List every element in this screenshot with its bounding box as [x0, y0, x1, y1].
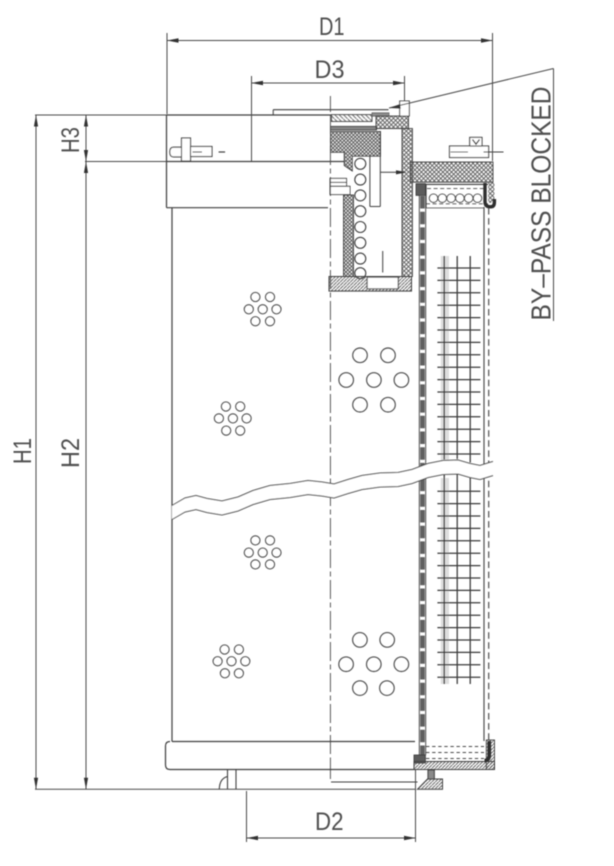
svg-text:D3: D3 [315, 56, 345, 84]
svg-text:H2: H2 [57, 438, 85, 468]
svg-text:H3: H3 [57, 127, 85, 153]
svg-text:H1: H1 [9, 438, 37, 464]
svg-text:D1: D1 [319, 13, 345, 41]
svg-text:D2: D2 [315, 808, 344, 836]
svg-text:BY–PASS BLOCKED: BY–PASS BLOCKED [526, 87, 557, 321]
